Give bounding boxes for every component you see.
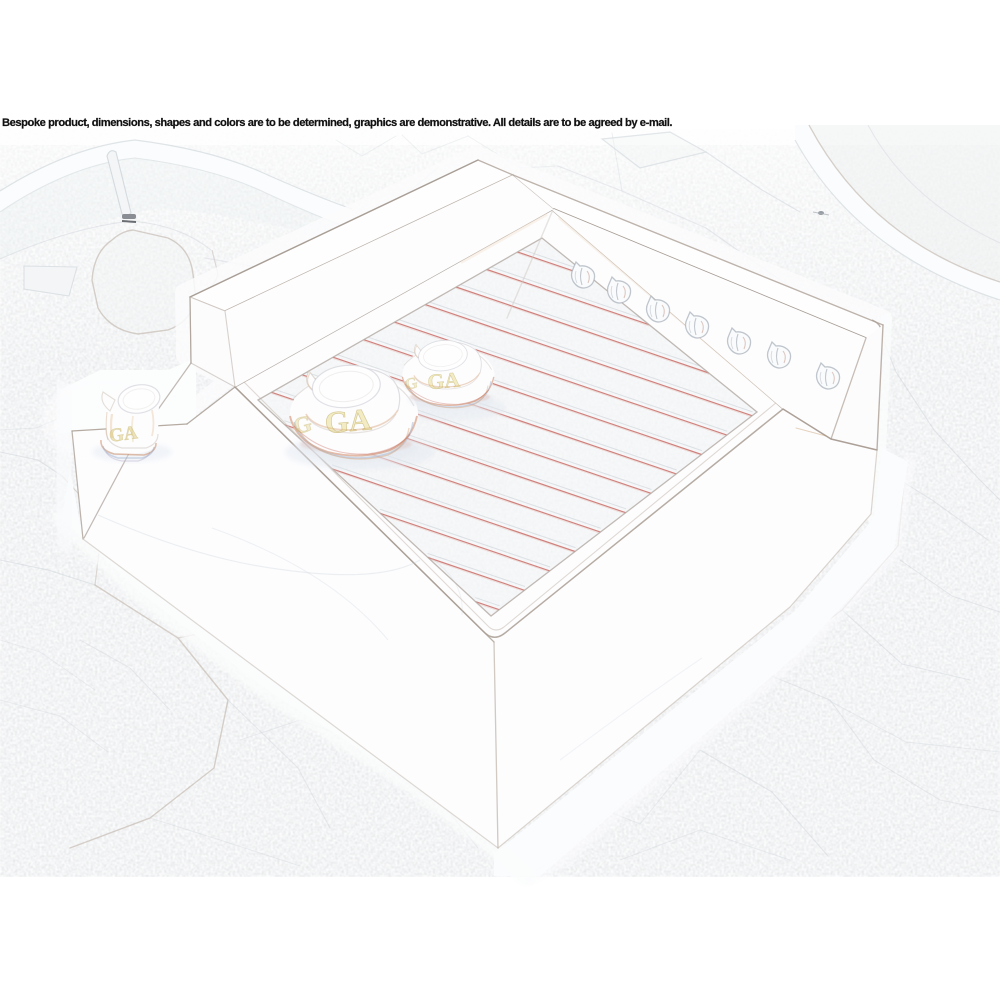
- svg-text:GA: GA: [108, 422, 139, 447]
- svg-text:GA: GA: [426, 368, 461, 395]
- svg-text:Bespoke product, dimensions, s: Bespoke product, dimensions, shapes and …: [2, 117, 672, 129]
- svg-text:GA: GA: [323, 401, 373, 440]
